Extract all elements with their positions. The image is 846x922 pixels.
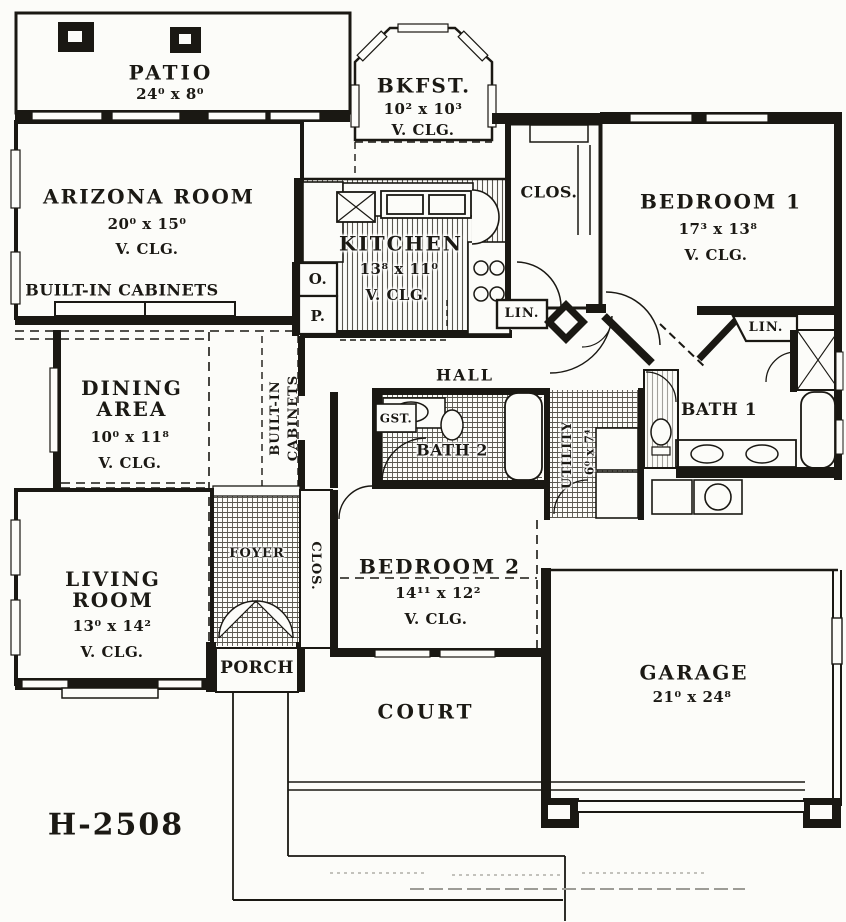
bedroom2-ceiling: V. CLG. (405, 612, 468, 628)
bedroom2-dims: 14¹¹ x 12² (395, 586, 481, 602)
utility-dims: 6⁰ x 7⁴ (584, 429, 597, 475)
dining-area-dims: 10⁰ x 11⁸ (91, 430, 170, 446)
pantry-label: P. (310, 309, 325, 325)
bedroom1-ceiling: V. CLG. (685, 248, 748, 264)
kitchen-dims: 13⁸ x 11⁰ (360, 262, 439, 278)
living-room-dims: 13⁰ x 14² (73, 619, 152, 635)
garage-dims: 21⁰ x 24⁸ (653, 690, 732, 706)
court-label: COURT (378, 702, 475, 723)
arizona-room-dims: 20⁰ x 15⁰ (108, 217, 187, 233)
linen2-label: LIN. (749, 321, 784, 335)
water-closet (644, 370, 678, 468)
dining-area-ceiling: V. CLG. (99, 456, 162, 472)
closet1-label: CLOS. (521, 185, 578, 202)
arizona-room-label: ARIZONA ROOM (43, 187, 255, 208)
floor-plan-h2508: PATIO 24⁰ x 8⁰ BKFST. 10² x 10³ V. CLG. … (0, 0, 846, 922)
hall-label: HALL (436, 368, 494, 385)
linen1-label: LIN. (505, 307, 540, 321)
patio-door-windows (32, 112, 320, 120)
front-wall-segment (492, 113, 608, 124)
porch-label: PORCH (220, 660, 294, 678)
living-room-label: LIVING ROOM (48, 569, 178, 611)
plan-number: H-2508 (48, 809, 184, 841)
patio-label: PATIO (129, 63, 214, 84)
bedroom2-label: BEDROOM 2 (359, 557, 521, 578)
foyer-label: FOYER (229, 547, 285, 561)
patio-posts (58, 22, 201, 53)
bkfst-dims: 10² x 10³ (384, 102, 463, 118)
dining-area-label: DINING AREA (67, 378, 197, 420)
guest-closet-label: GST. (380, 413, 412, 426)
bedroom1-dims: 17³ x 13⁸ (679, 222, 758, 238)
bath2-label: BATH 2 (416, 443, 488, 460)
bedroom1-label: BEDROOM 1 (640, 192, 802, 213)
arizona-room-ceiling: V. CLG. (116, 242, 179, 258)
laundry-appliances (652, 480, 742, 514)
living-room-ceiling: V. CLG. (81, 645, 144, 661)
patio-dims: 24⁰ x 8⁰ (136, 87, 204, 103)
built-in-cabinets-label: BUILT-IN CABINETS (25, 283, 218, 300)
closet2-label: CLOS. (308, 541, 322, 590)
kitchen-label: KITCHEN (339, 234, 463, 255)
kitchen-range (337, 192, 375, 222)
closet1 (505, 124, 606, 313)
kitchen-ceiling: V. CLG. (366, 288, 429, 304)
faded-caption-marks (330, 873, 745, 889)
bath1-label: BATH 1 (681, 402, 757, 420)
built-in-vertical-label: BUILT-IN (269, 380, 283, 455)
oven-label: O. (309, 272, 327, 288)
bedroom2-left-wall (330, 490, 338, 655)
bkfst-label: BKFST. (377, 76, 471, 97)
bkfst-ceiling: V. CLG. (392, 123, 455, 139)
utility-label: UTILITY (561, 421, 575, 489)
kitchen-sink (381, 191, 471, 218)
cabinets-vertical-label: CABINETS (287, 375, 301, 461)
garage-label: GARAGE (639, 663, 748, 684)
